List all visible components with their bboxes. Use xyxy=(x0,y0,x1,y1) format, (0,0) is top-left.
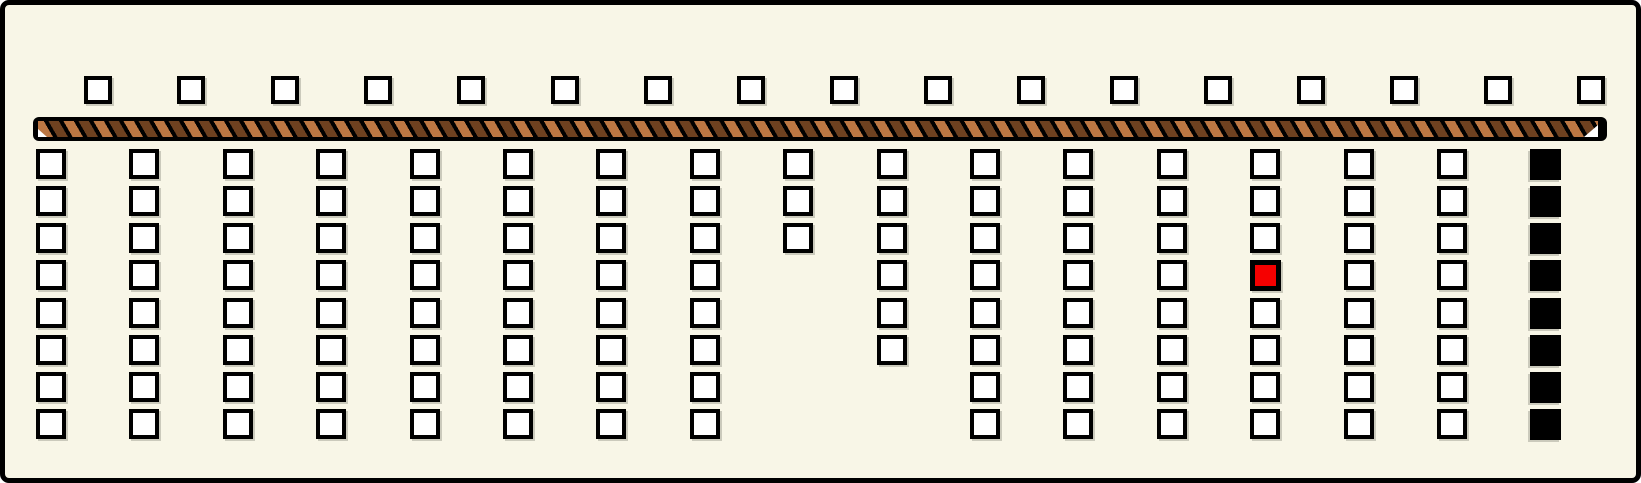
board-cell[interactable] xyxy=(1437,260,1467,290)
board-cell[interactable] xyxy=(410,260,440,290)
board-cell[interactable] xyxy=(1437,335,1467,365)
top-cell[interactable] xyxy=(84,76,112,104)
board-cell[interactable] xyxy=(1063,298,1093,328)
board-cell[interactable] xyxy=(596,298,626,328)
board-cell[interactable] xyxy=(129,260,159,290)
board-cell[interactable] xyxy=(877,223,907,253)
board-cell[interactable] xyxy=(316,372,346,402)
board-cell[interactable] xyxy=(316,409,346,439)
board-cell[interactable] xyxy=(1157,223,1187,253)
board-cell[interactable] xyxy=(503,260,533,290)
board-cell[interactable] xyxy=(596,372,626,402)
board-cell[interactable] xyxy=(316,260,346,290)
board-cell[interactable] xyxy=(1063,149,1093,179)
board-cell[interactable] xyxy=(1344,186,1374,216)
board-cell[interactable] xyxy=(410,223,440,253)
top-cell[interactable] xyxy=(1577,76,1605,104)
board-cell[interactable] xyxy=(410,298,440,328)
board-cell[interactable] xyxy=(877,186,907,216)
board-cell[interactable] xyxy=(690,186,720,216)
board-cell[interactable] xyxy=(970,223,1000,253)
board-cell[interactable] xyxy=(129,372,159,402)
board-cell[interactable] xyxy=(36,298,66,328)
board-cell[interactable] xyxy=(410,149,440,179)
board-cell[interactable] xyxy=(129,223,159,253)
board-cell[interactable] xyxy=(877,298,907,328)
board-cell[interactable] xyxy=(410,372,440,402)
board-cell[interactable] xyxy=(129,186,159,216)
filled-cell[interactable] xyxy=(1530,335,1561,366)
board-cell[interactable] xyxy=(1437,409,1467,439)
board-cell[interactable] xyxy=(690,149,720,179)
board-cell[interactable] xyxy=(1344,260,1374,290)
board-cell[interactable] xyxy=(1250,298,1280,328)
board-cell[interactable] xyxy=(1437,149,1467,179)
board-cell[interactable] xyxy=(970,186,1000,216)
board-cell[interactable] xyxy=(1344,298,1374,328)
top-cell[interactable] xyxy=(924,76,952,104)
board-cell[interactable] xyxy=(223,335,253,365)
board-cell[interactable] xyxy=(503,149,533,179)
board-cell[interactable] xyxy=(503,186,533,216)
board-cell[interactable] xyxy=(410,335,440,365)
board-cell[interactable] xyxy=(877,335,907,365)
board-cell[interactable] xyxy=(503,409,533,439)
board-cell[interactable] xyxy=(36,409,66,439)
board-cell[interactable] xyxy=(596,260,626,290)
board-cell[interactable] xyxy=(223,260,253,290)
board-cell[interactable] xyxy=(690,409,720,439)
board-cell[interactable] xyxy=(316,298,346,328)
board-cell[interactable] xyxy=(316,186,346,216)
board-cell[interactable] xyxy=(1437,372,1467,402)
board-cell[interactable] xyxy=(129,298,159,328)
board-cell[interactable] xyxy=(1157,372,1187,402)
filled-cell[interactable] xyxy=(1530,149,1561,180)
top-cell[interactable] xyxy=(364,76,392,104)
selected-cell[interactable] xyxy=(1250,260,1281,291)
board-cell[interactable] xyxy=(36,186,66,216)
board-cell[interactable] xyxy=(690,298,720,328)
board-cell[interactable] xyxy=(1063,409,1093,439)
board-cell[interactable] xyxy=(223,409,253,439)
divider-bar xyxy=(33,117,1607,141)
filled-cell[interactable] xyxy=(1530,223,1561,254)
board-cell[interactable] xyxy=(223,186,253,216)
board-cell[interactable] xyxy=(129,335,159,365)
board-cell[interactable] xyxy=(1344,149,1374,179)
board-cell[interactable] xyxy=(316,223,346,253)
top-cell[interactable] xyxy=(1297,76,1325,104)
top-cell[interactable] xyxy=(177,76,205,104)
board-cell[interactable] xyxy=(1063,335,1093,365)
board-cell[interactable] xyxy=(1437,298,1467,328)
board-cell[interactable] xyxy=(129,409,159,439)
board-cell[interactable] xyxy=(596,149,626,179)
board-cell[interactable] xyxy=(1344,223,1374,253)
board-cell[interactable] xyxy=(36,260,66,290)
board-cell[interactable] xyxy=(1437,223,1467,253)
board-cell[interactable] xyxy=(1344,335,1374,365)
board-cell[interactable] xyxy=(970,260,1000,290)
top-cell[interactable] xyxy=(1017,76,1045,104)
board-cell[interactable] xyxy=(410,409,440,439)
board-cell[interactable] xyxy=(223,298,253,328)
board-cell[interactable] xyxy=(877,260,907,290)
board-cell[interactable] xyxy=(503,298,533,328)
board-cell[interactable] xyxy=(1437,186,1467,216)
top-cell[interactable] xyxy=(644,76,672,104)
filled-cell[interactable] xyxy=(1530,372,1561,403)
board-cell[interactable] xyxy=(1250,335,1280,365)
board-cell[interactable] xyxy=(1063,186,1093,216)
board-cell[interactable] xyxy=(596,186,626,216)
board-cell[interactable] xyxy=(690,260,720,290)
board-cell[interactable] xyxy=(1157,260,1187,290)
top-cell[interactable] xyxy=(271,76,299,104)
board-cell[interactable] xyxy=(596,335,626,365)
board-cell[interactable] xyxy=(1250,186,1280,216)
board-cell[interactable] xyxy=(410,186,440,216)
game-window xyxy=(0,0,1641,483)
top-cell[interactable] xyxy=(1110,76,1138,104)
board-cell[interactable] xyxy=(877,149,907,179)
board-cell[interactable] xyxy=(503,335,533,365)
board-cell[interactable] xyxy=(970,149,1000,179)
board-cell[interactable] xyxy=(1344,409,1374,439)
filled-cell[interactable] xyxy=(1530,298,1561,329)
board-cell[interactable] xyxy=(223,223,253,253)
board-cell[interactable] xyxy=(970,409,1000,439)
top-cell[interactable] xyxy=(457,76,485,104)
board-cell[interactable] xyxy=(1063,223,1093,253)
board-cell[interactable] xyxy=(503,223,533,253)
board-cell[interactable] xyxy=(970,335,1000,365)
board-cell[interactable] xyxy=(596,223,626,253)
board-cell[interactable] xyxy=(1250,223,1280,253)
filled-cell[interactable] xyxy=(1530,409,1561,440)
board-cell[interactable] xyxy=(1063,260,1093,290)
board-cell[interactable] xyxy=(783,149,813,179)
board-cell[interactable] xyxy=(36,149,66,179)
board-cell[interactable] xyxy=(1063,372,1093,402)
board-cell[interactable] xyxy=(783,186,813,216)
board-cell[interactable] xyxy=(1157,335,1187,365)
board-cell[interactable] xyxy=(223,372,253,402)
board-cell[interactable] xyxy=(129,149,159,179)
board-cell[interactable] xyxy=(970,298,1000,328)
board-cell[interactable] xyxy=(1157,186,1187,216)
top-cell[interactable] xyxy=(1390,76,1418,104)
board-cell[interactable] xyxy=(36,372,66,402)
board-cell[interactable] xyxy=(783,223,813,253)
board-cell[interactable] xyxy=(1157,409,1187,439)
board-cell[interactable] xyxy=(970,372,1000,402)
board-cell[interactable] xyxy=(36,223,66,253)
board-cell[interactable] xyxy=(1157,149,1187,179)
board-cell[interactable] xyxy=(1250,409,1280,439)
top-cell[interactable] xyxy=(1204,76,1232,104)
board-cell[interactable] xyxy=(503,372,533,402)
board-cell[interactable] xyxy=(223,149,253,179)
board-cell[interactable] xyxy=(690,372,720,402)
board-cell[interactable] xyxy=(690,223,720,253)
top-cell[interactable] xyxy=(1484,76,1512,104)
top-cell[interactable] xyxy=(737,76,765,104)
divider-bar-stripes xyxy=(38,121,1598,137)
board-cell[interactable] xyxy=(1250,372,1280,402)
filled-cell[interactable] xyxy=(1530,260,1561,291)
top-cell[interactable] xyxy=(830,76,858,104)
board-cell[interactable] xyxy=(596,409,626,439)
board-cell[interactable] xyxy=(1344,372,1374,402)
board-cell[interactable] xyxy=(1157,298,1187,328)
board-cell[interactable] xyxy=(316,149,346,179)
board-cell[interactable] xyxy=(690,335,720,365)
board-cell[interactable] xyxy=(1250,149,1280,179)
filled-cell[interactable] xyxy=(1530,186,1561,217)
board-cell[interactable] xyxy=(316,335,346,365)
board-cell[interactable] xyxy=(36,335,66,365)
top-cell[interactable] xyxy=(551,76,579,104)
